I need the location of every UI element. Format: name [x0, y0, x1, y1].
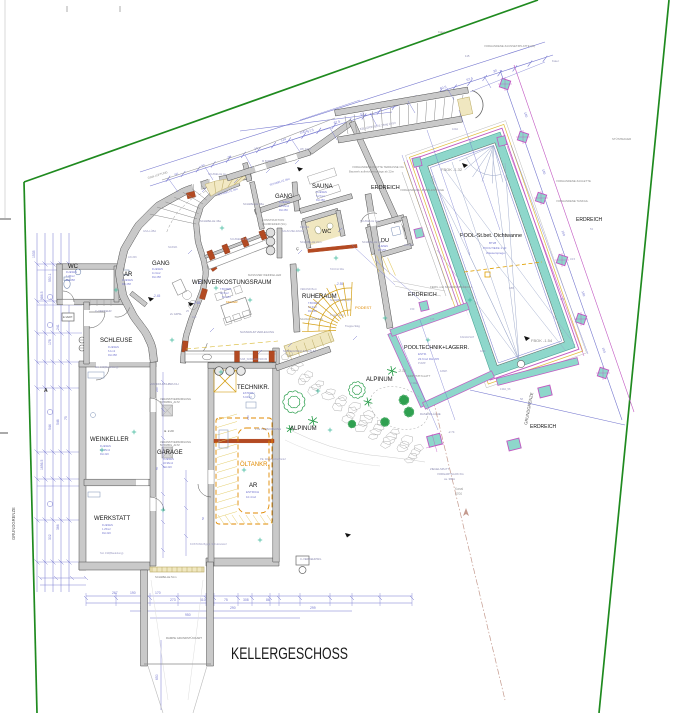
svg-text:E-VERT.: E-VERT.	[63, 315, 73, 319]
svg-text:12.3m2: 12.3m2	[308, 305, 317, 309]
svg-text:241: 241	[56, 324, 60, 330]
svg-text:267: 267	[112, 591, 118, 595]
svg-text:273: 273	[170, 598, 176, 602]
svg-text:AR: AR	[124, 272, 133, 278]
svg-text:RH 257: RH 257	[404, 243, 413, 247]
svg-text:220: 220	[155, 387, 159, 392]
svg-text:56: 56	[201, 516, 205, 520]
svg-text:VERPUTZT/GLATT: VERPUTZT/GLATT	[406, 374, 431, 378]
svg-text:RASENFLÄCHE: RASENFLÄCHE	[420, 412, 441, 416]
svg-text:ÖLTANKR.: ÖLTANKR.	[240, 461, 269, 468]
svg-text:544: 544	[48, 424, 52, 430]
svg-text:4700: 4700	[455, 492, 462, 496]
svg-text:100: 100	[192, 315, 197, 319]
svg-text:RH 260: RH 260	[308, 309, 317, 313]
svg-text:TAUCH 30a: TAUCH 30a	[330, 267, 344, 271]
svg-text:SCHWELLE 4cm: SCHWELLE 4cm	[330, 298, 352, 302]
svg-text:Kote I: Kote I	[438, 30, 446, 34]
svg-text:55: 55	[155, 466, 159, 470]
svg-text:190: 190	[130, 591, 136, 595]
svg-text:WANDDURCHBRUCH: WANDDURCHBRUCH	[150, 382, 179, 386]
svg-text:SAB SCHWELLEN RAUM: SAB SCHWELLEN RAUM	[283, 349, 316, 353]
svg-text:11.9m2: 11.9m2	[152, 271, 161, 275]
svg-text:RH 256: RH 256	[279, 208, 288, 212]
svg-text:SAUNA: SAUNA	[312, 184, 333, 190]
svg-text:RH 256: RH 256	[316, 198, 325, 202]
svg-text:550.1: 550.1	[48, 273, 52, 282]
svg-text:SCHWELLE 46a: SCHWELLE 46a	[243, 202, 264, 206]
svg-text:VORHANDENE UMWÄLZANLAGE: VORHANDENE UMWÄLZANLAGE	[400, 188, 444, 192]
svg-text:160: 160	[560, 297, 565, 301]
svg-text:POOL-St.bet. Dichtwanne: POOL-St.bet. Dichtwanne	[460, 233, 522, 239]
svg-text:FLIESEN: FLIESEN	[163, 457, 174, 461]
svg-text:BT: BT	[470, 139, 474, 143]
svg-text:Kote I: Kote I	[552, 59, 560, 63]
svg-text:RH 220: RH 220	[102, 531, 111, 535]
svg-text:13.05m2: 13.05m2	[279, 204, 290, 208]
svg-text:299: 299	[310, 606, 316, 610]
svg-text:FLIESEN: FLIESEN	[102, 523, 113, 527]
svg-text:FLIESEN: FLIESEN	[316, 190, 327, 194]
svg-text:FLIESEN: FLIESEN	[279, 200, 290, 204]
svg-text:FLIESEN: FLIESEN	[100, 444, 111, 448]
svg-text:KELLER: KELLER	[226, 300, 238, 304]
svg-text:6.04m2: 6.04m2	[243, 395, 252, 399]
svg-text:42.5m2: 42.5m2	[220, 291, 229, 295]
svg-text:KANALISAT: KANALISAT	[460, 335, 474, 339]
svg-text:C-VERKEHR: C-VERKEHR	[95, 309, 111, 313]
svg-text:1656.5: 1656.5	[40, 460, 44, 470]
svg-text:178: 178	[48, 339, 52, 345]
svg-text:VORHANDENE ZAULETTE: VORHANDENE ZAULETTE	[556, 179, 591, 183]
svg-text:75: 75	[64, 416, 68, 420]
svg-text:NASSRAUM VERLEGUNG: NASSRAUM VERLEGUNG	[240, 330, 274, 334]
svg-text:302: 302	[48, 534, 52, 540]
svg-text:GANG: GANG	[275, 194, 293, 200]
svg-text:SAUGL HEIZUNG: SAUGL HEIZUNG	[300, 317, 323, 321]
svg-text:10.4m2: 10.4m2	[246, 495, 256, 499]
svg-text:FAM.: FAM.	[480, 349, 486, 353]
svg-text:VORHANDENE TANKGIL: VORHANDENE TANKGIL	[556, 199, 589, 203]
svg-text:LTG VERSORGUNG: LTG VERSORGUNG	[255, 427, 281, 431]
svg-text:986.5: 986.5	[40, 291, 44, 300]
svg-text:Bauwerk aufheizt/anschlags ab: Bauwerk aufheizt/anschlags ab 22er	[349, 170, 394, 174]
svg-text:ESTR.: ESTR.	[418, 352, 427, 356]
svg-text:23.6m2 RH 205: 23.6m2 RH 205	[418, 357, 439, 361]
svg-text:RAUMFEDER (SG): RAUMFEDER (SG)	[262, 222, 286, 226]
svg-text:FLIESEN: FLIESEN	[152, 267, 163, 271]
svg-text:ERDREICH: ERDREICH	[371, 185, 400, 191]
svg-text:RH 220: RH 220	[163, 465, 172, 469]
svg-text:GRUNDGRENZE: GRUNDGRENZE	[11, 507, 16, 540]
svg-text:KOSTUNG Bgsgl. Schutzanstof: KOSTUNG Bgsgl. Schutzanstof	[190, 542, 227, 546]
svg-text:366: 366	[56, 524, 60, 530]
svg-text:290: 290	[230, 606, 236, 610]
svg-text:650: 650	[155, 674, 159, 680]
svg-text:1.25m2: 1.25m2	[102, 527, 111, 531]
svg-text:Kanal: Kanal	[455, 487, 463, 491]
svg-text:6.1m2: 6.1m2	[108, 349, 116, 353]
svg-text:SCHWELLE 46a: SCHWELLE 46a	[200, 219, 221, 223]
svg-text:VORGARTSGOK KG: VORGARTSGOK KG	[437, 472, 464, 476]
svg-text:ESTRICH: ESTRICH	[243, 391, 255, 395]
svg-text:180: 180	[509, 286, 514, 290]
svg-text:WF 234.7: WF 234.7	[300, 147, 312, 151]
svg-text:546: 546	[56, 419, 60, 425]
svg-text:5.27m2: 5.27m2	[316, 194, 325, 198]
svg-text:MASSIVER WEINKELLER: MASSIVER WEINKELLER	[248, 273, 281, 277]
svg-text:130A_56: 130A_56	[500, 387, 511, 391]
svg-text:ALPINUM: ALPINUM	[290, 426, 317, 432]
svg-text:Treppe 9stg: Treppe 9stg	[330, 313, 344, 317]
svg-text:ERDREICH: ERDREICH	[530, 424, 557, 430]
svg-text:ALPINUM: ALPINUM	[366, 377, 393, 383]
svg-text:-2.10: -2.10	[398, 369, 406, 373]
svg-text:SAUM ZIELRAUM: SAUM ZIELRAUM	[282, 229, 303, 233]
svg-text:SCHWELLE 46a: SCHWELLE 46a	[230, 237, 250, 241]
svg-text:SAB_SKBILLIAFSRUM: SAB_SKBILLIAFSRUM	[240, 357, 267, 361]
svg-text:STÜTZMAUER: STÜTZMAUER	[612, 137, 631, 141]
svg-text:100A: 100A	[452, 127, 458, 131]
svg-text:1535: 1535	[32, 250, 36, 258]
svg-text:WC: WC	[322, 229, 331, 235]
svg-text:115: 115	[465, 54, 470, 58]
svg-text:FBOK -1.54: FBOK -1.54	[531, 338, 553, 343]
svg-text:FERN- und SCHWENKBEREICH: FERN- und SCHWENKBEREICH	[430, 285, 472, 289]
svg-text:GARAGE: GARAGE	[157, 450, 183, 456]
svg-text:C-VERKEHRSFL: C-VERKEHRSFL	[300, 557, 322, 561]
svg-text:AR: AR	[249, 483, 258, 489]
svg-text:T.BODEN: T.BODEN	[308, 301, 319, 305]
svg-text:VERAND Bern: VERAND Bern	[300, 287, 318, 291]
svg-text:T.BODEN: T.BODEN	[220, 287, 231, 291]
svg-text:SCHWELLE 2cm: SCHWELLE 2cm	[300, 240, 322, 244]
svg-text:FLIESEN: FLIESEN	[66, 270, 77, 274]
svg-text:KELLERGESCHOSS: KELLERGESCHOSS	[231, 645, 348, 663]
svg-text:PE, Wag2 Schutzleituf: PE, Wag2 Schutzleituf	[260, 457, 286, 461]
svg-text:2.10a: 2.10a	[410, 381, 417, 385]
svg-text:RW 234: RW 234	[300, 225, 310, 229]
svg-text:SCHWELLE 4cm: SCHWELLE 4cm	[362, 240, 384, 244]
svg-text:TECHNIKR.: TECHNIKR.	[237, 385, 270, 391]
svg-text:1.45m2: 1.45m2	[66, 274, 75, 278]
svg-text:RAMPE GRUNDSTÜCKART: RAMPE GRUNDSTÜCKART	[166, 636, 202, 640]
svg-text:RH 220: RH 220	[100, 452, 109, 456]
svg-text:Treppe 9stg: Treppe 9stg	[345, 324, 360, 328]
svg-text:ZIEGELSPLITT: ZIEGELSPLITT	[430, 467, 450, 471]
svg-text:WEINKELLER: WEINKELLER	[90, 437, 129, 443]
svg-text:RH 257: RH 257	[378, 249, 387, 252]
svg-text:VORHANDENE PLATTE TERRASSE OG: VORHANDENE PLATTE TERRASSE OG	[352, 165, 404, 169]
svg-text:-2.55: -2.55	[336, 282, 343, 286]
svg-text:WC: WC	[68, 264, 79, 270]
svg-text:A: A	[44, 388, 48, 394]
svg-text:GSA-LÜBA: GSA-LÜBA	[143, 229, 156, 233]
svg-text:FLIESEN: FLIESEN	[378, 245, 388, 248]
svg-text:AN 206: AN 206	[128, 255, 137, 259]
svg-text:SCHWELLE 5cm: SCHWELLE 5cm	[155, 575, 177, 579]
svg-text:VORHANDENE ZAUNSETZPLATTE (W): VORHANDENE ZAUNSETZPLATTE (W)	[484, 44, 535, 48]
svg-text:-2.45: -2.45	[153, 294, 160, 298]
svg-text:SCHWELLE 4a: SCHWELLE 4a	[208, 172, 226, 176]
svg-text:Ç: Ç	[296, 246, 299, 251]
svg-text:PODEST: PODEST	[355, 305, 372, 310]
svg-text:SCHLEUSE: SCHLEUSE	[100, 338, 132, 344]
svg-text:-2.55: -2.55	[193, 301, 200, 305]
svg-text:SH. 190(Bauleitung): SH. 190(Bauleitung)	[100, 551, 123, 555]
svg-text:SH. 190(Bauleitung): SH. 190(Bauleitung)	[95, 365, 118, 369]
svg-text:FLIESEN: FLIESEN	[122, 278, 133, 282]
svg-text:-2.74: -2.74	[448, 430, 455, 434]
svg-text:RH 258: RH 258	[122, 282, 131, 286]
svg-text:BT28: BT28	[489, 241, 497, 245]
svg-text:165: 165	[430, 317, 435, 321]
svg-text:43.5: 43.5	[570, 257, 576, 261]
svg-text:ca. 380A: ca. 380A	[444, 477, 455, 481]
svg-text:308: 308	[243, 598, 249, 602]
svg-text:ESTRICH: ESTRICH	[246, 490, 259, 494]
svg-text:GANG: GANG	[152, 261, 170, 267]
svg-text:ERDREICH: ERDREICH	[576, 217, 603, 223]
svg-text:PUMP.: PUMP.	[418, 361, 426, 365]
svg-text:RH 257: RH 257	[222, 295, 231, 299]
svg-text:SCHWELLE 3cm: SCHWELLE 3cm	[360, 219, 380, 223]
svg-text:2x GIPSL: 2x GIPSL	[170, 312, 182, 316]
svg-text:WERKSTATT: WERKSTATT	[94, 516, 130, 522]
svg-text:RH 258: RH 258	[152, 275, 161, 279]
svg-text:RH 258: RH 258	[108, 353, 117, 357]
svg-text:FBOK -1.32: FBOK -1.32	[441, 167, 463, 172]
svg-text:75: 75	[224, 598, 228, 602]
svg-text:FLIESEN: FLIESEN	[108, 345, 119, 349]
svg-text:170: 170	[155, 591, 161, 595]
svg-text:FAMP.: FAMP.	[440, 369, 448, 373]
svg-text:► 2.20: ► 2.20	[164, 429, 174, 433]
svg-text:150: 150	[410, 307, 415, 311]
svg-text:240: 240	[246, 415, 250, 420]
svg-text:POOLTECHNIK+LAGERR.: POOLTECHNIK+LAGERR.	[404, 345, 469, 351]
svg-text:86: 86	[266, 598, 270, 602]
svg-text:RH 258: RH 258	[66, 278, 75, 282]
svg-text:NASSR.: NASSR.	[168, 245, 178, 249]
svg-text:M 80/80/13: M 80/80/13	[262, 159, 276, 163]
svg-text:32.96m2: 32.96m2	[163, 461, 174, 465]
svg-text:950: 950	[185, 613, 191, 617]
svg-text:WEINVERKOSTUNGSRAUM: WEINVERKOSTUNGSRAUM	[192, 280, 271, 286]
